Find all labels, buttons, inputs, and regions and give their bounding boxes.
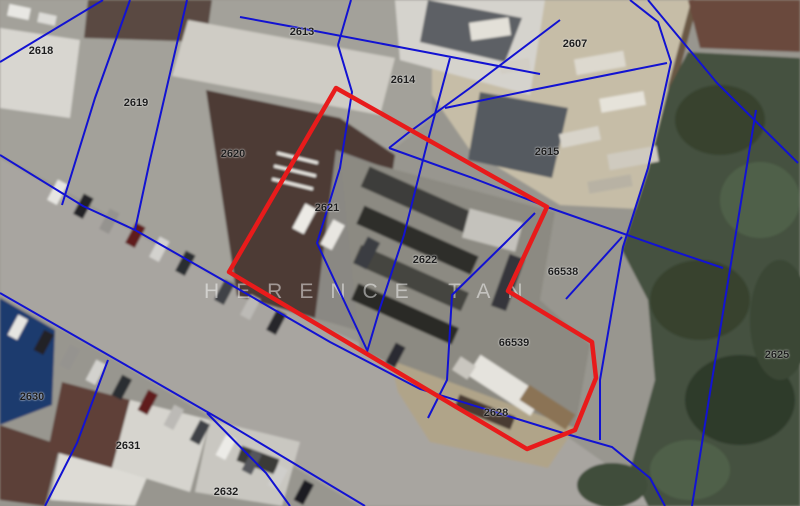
parcel-boundary-line: [389, 148, 723, 268]
parcel-boundary-line: [45, 360, 108, 506]
parcel-boundary-line: [648, 0, 798, 163]
satellite-cadastral-map[interactable]: HERENCE TAN 2618261926202621262226132614…: [0, 0, 800, 506]
parcel-boundary-line: [566, 237, 622, 299]
parcel-boundary-line: [692, 110, 756, 506]
parcel-boundary-line: [428, 213, 535, 418]
parcel-boundary-line: [135, 0, 187, 230]
parcel-boundary-line: [207, 413, 290, 506]
parcel-boundary-line: [62, 0, 130, 205]
parcel-boundary-line: [0, 155, 665, 506]
cadastral-overlay-layer: [0, 0, 800, 506]
parcel-boundary-line: [389, 20, 560, 148]
selected-parcels-outline[interactable]: [229, 88, 596, 449]
parcel-boundary-line: [445, 63, 667, 108]
parcel-boundary-line: [0, 0, 103, 62]
parcel-boundary-line: [240, 17, 540, 74]
parcel-boundary-line: [600, 0, 671, 440]
parcel-boundary-line: [0, 293, 365, 506]
parcel-boundary-line: [367, 58, 450, 352]
